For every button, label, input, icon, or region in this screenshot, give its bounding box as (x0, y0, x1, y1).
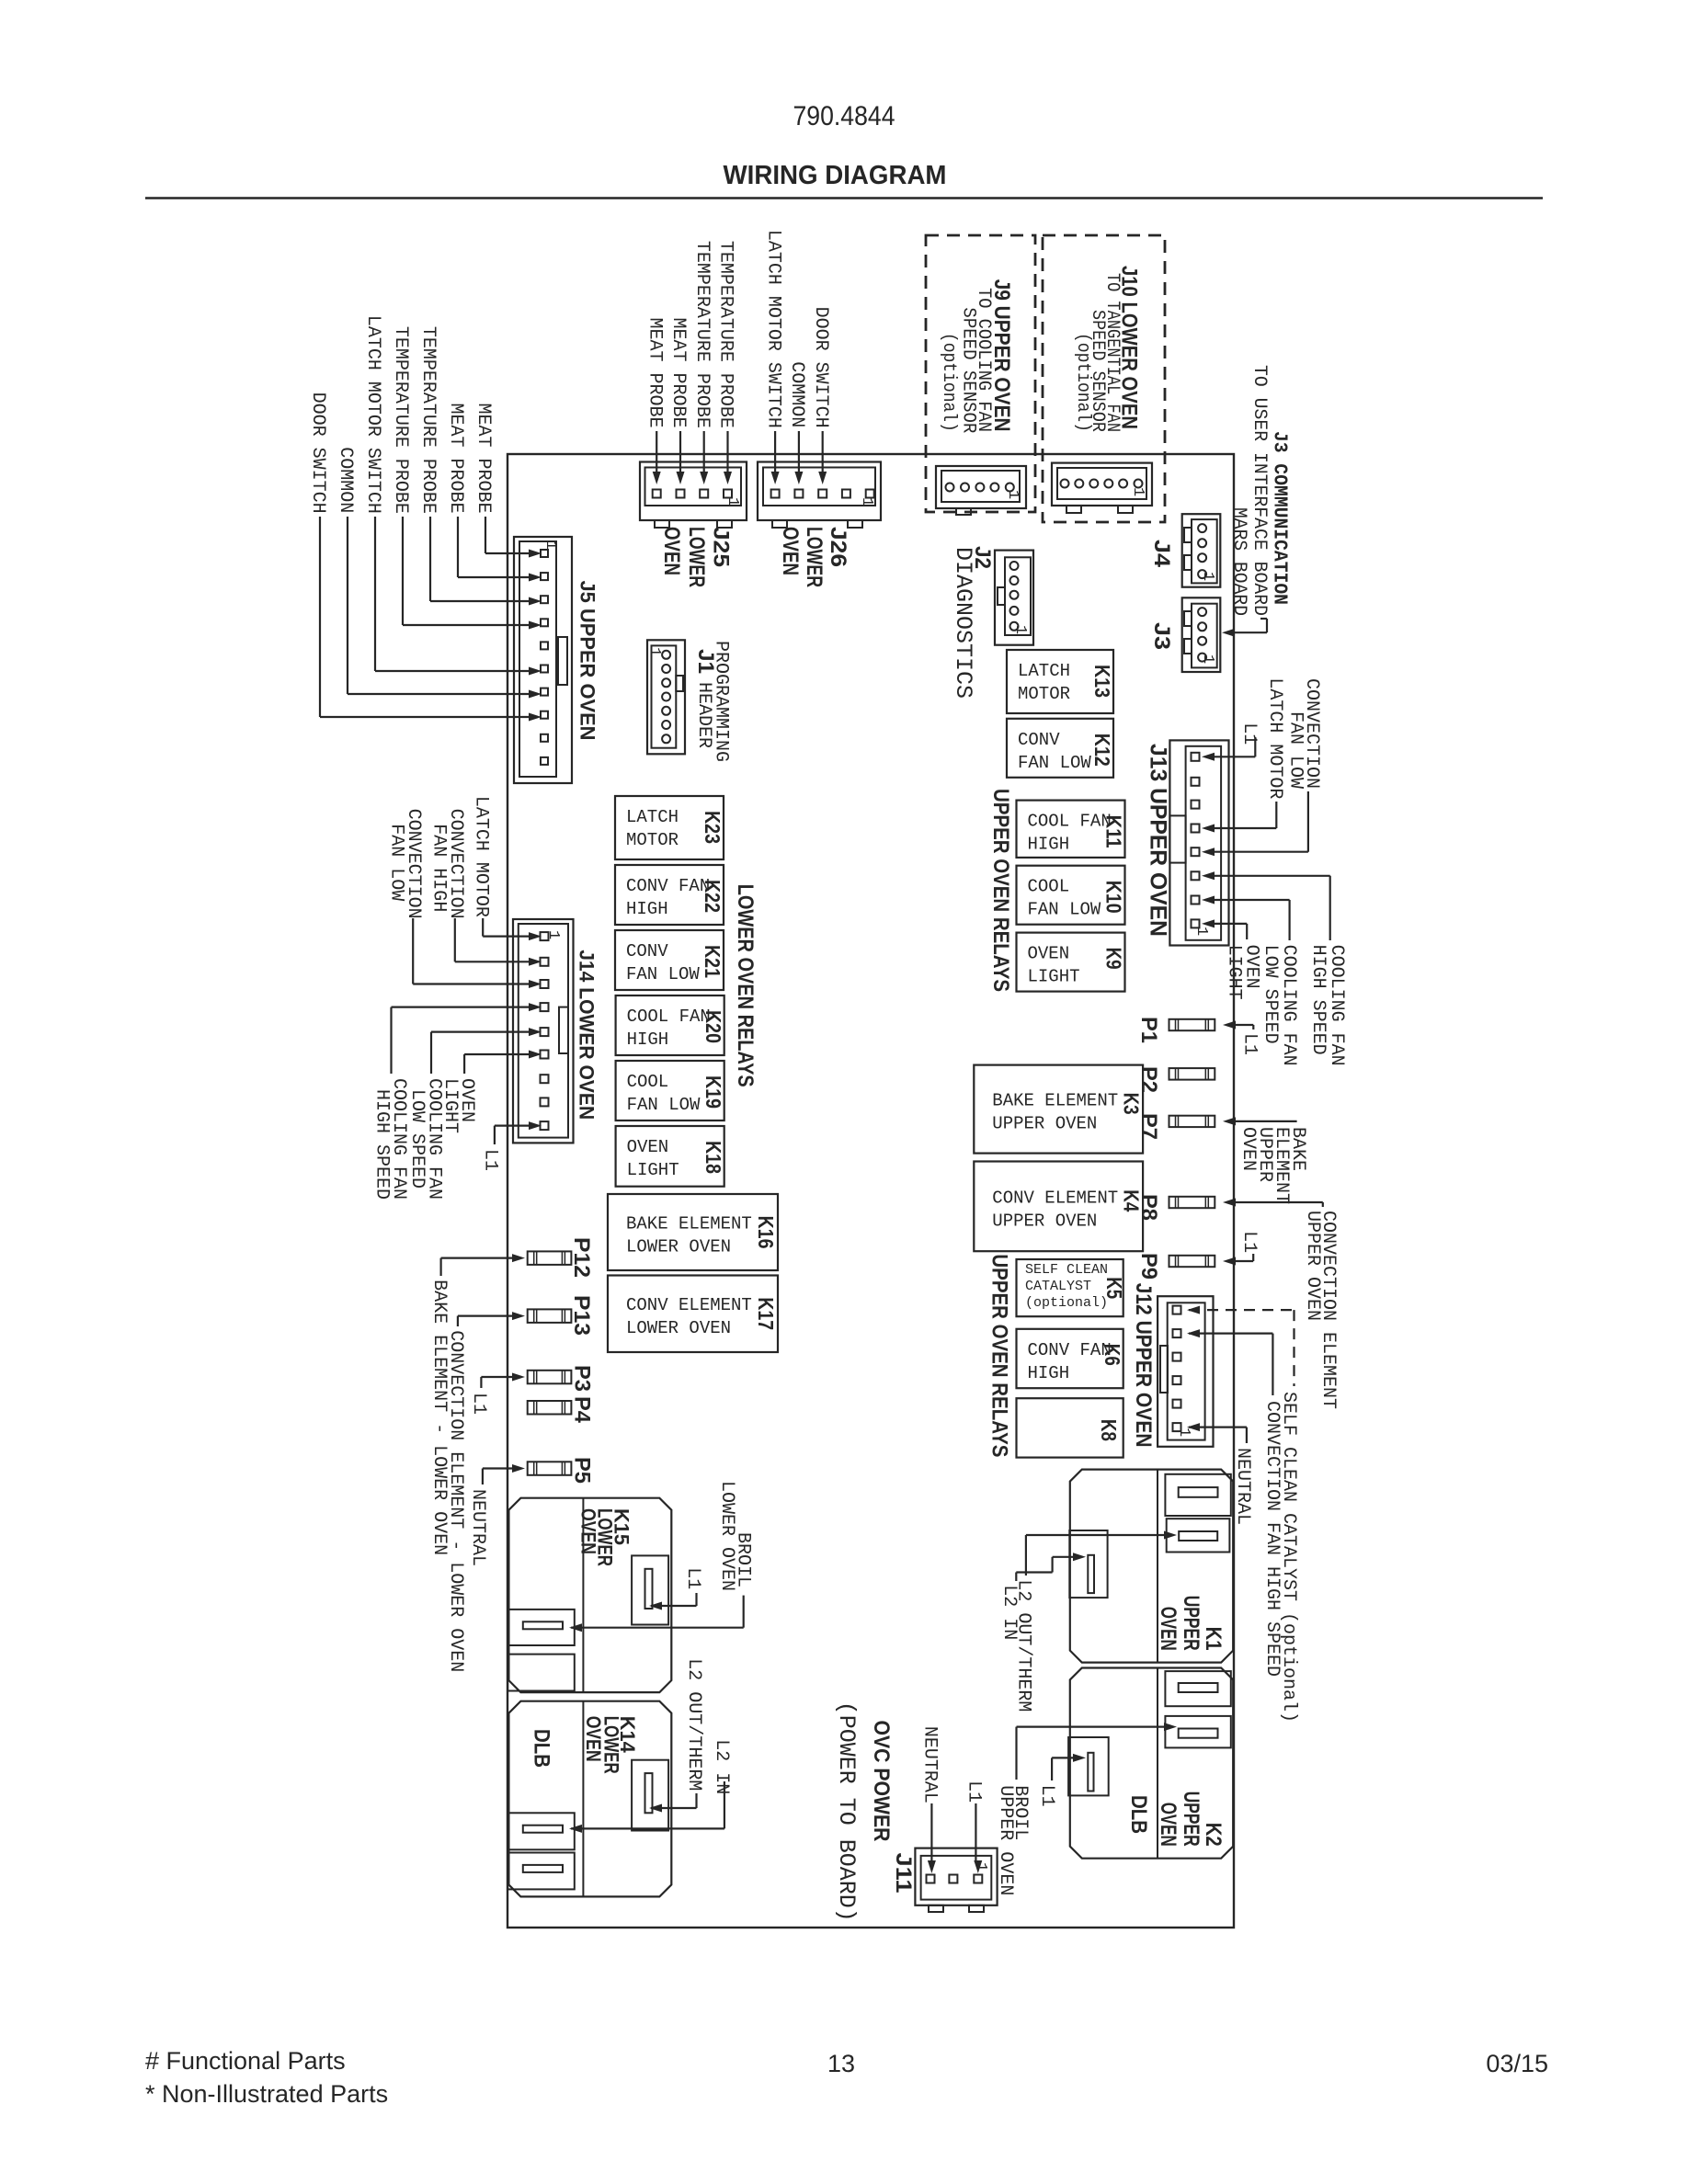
svg-text:OVEN: OVEN (577, 1508, 600, 1554)
svg-text:CONVECTION ELEMENT - LOWER OVE: CONVECTION ELEMENT - LOWER OVEN (445, 1330, 466, 1672)
svg-text:P4: P4 (570, 1396, 595, 1424)
svg-text:BAKE ELEMENT: BAKE ELEMENT (992, 1091, 1118, 1111)
svg-text:LOWER OVEN RELAYS: LOWER OVEN RELAYS (733, 884, 758, 1087)
svg-text:MEAT PROBE: MEAT PROBE (667, 318, 689, 428)
svg-text:SPEED SENSOR: SPEED SENSOR (958, 307, 979, 433)
svg-text:LIGHT: LIGHT (627, 1160, 679, 1180)
svg-text:L2 IN: L2 IN (711, 1739, 732, 1794)
svg-text:OVEN: OVEN (778, 527, 803, 575)
svg-text:FAN LOW: FAN LOW (626, 964, 700, 984)
svg-text:1: 1 (542, 540, 559, 550)
svg-text:TEMPERATURE PROBE: TEMPERATURE PROBE (691, 241, 713, 428)
svg-text:L1: L1 (964, 1780, 985, 1803)
svg-text:J5 UPPER OVEN: J5 UPPER OVEN (576, 581, 599, 741)
svg-text:J1: J1 (693, 649, 718, 674)
svg-text:K17: K17 (754, 1297, 778, 1330)
svg-text:LOWER: LOWER (802, 527, 827, 587)
svg-text:UPPER OVEN: UPPER OVEN (992, 1114, 1097, 1134)
svg-text:MEAT PROBE: MEAT PROBE (445, 404, 466, 514)
svg-text:LATCH: LATCH (626, 807, 679, 827)
svg-text:BAKE ELEMENT: BAKE ELEMENT (626, 1214, 752, 1234)
svg-text:J14 LOWER OVEN: J14 LOWER OVEN (576, 950, 599, 1120)
svg-text:CONV ELEMENT: CONV ELEMENT (992, 1188, 1118, 1208)
svg-text:OVEN: OVEN (1156, 1607, 1180, 1651)
svg-text:LIGHT: LIGHT (439, 1078, 461, 1133)
svg-text:(optional): (optional) (1072, 333, 1093, 432)
svg-text:J3: J3 (1149, 622, 1174, 650)
svg-text:P13: P13 (569, 1295, 594, 1336)
svg-text:LOWER OVEN: LOWER OVEN (626, 1237, 731, 1257)
svg-text:K8: K8 (1097, 1419, 1121, 1441)
svg-text:K5: K5 (1102, 1277, 1126, 1299)
svg-text:LIGHT: LIGHT (1028, 967, 1080, 987)
svg-text:L1: L1 (468, 1393, 489, 1415)
svg-text:03/15: 03/15 (1486, 2050, 1548, 2077)
svg-text:CONV: CONV (626, 941, 668, 961)
svg-text:1: 1 (1192, 927, 1210, 936)
svg-text:L1: L1 (1238, 722, 1260, 745)
svg-text:P1: P1 (1136, 1017, 1161, 1043)
svg-text:LOWER OVEN: LOWER OVEN (716, 1481, 737, 1591)
svg-text:MEAT PROBE: MEAT PROBE (473, 404, 494, 514)
svg-text:COOL FAN: COOL FAN (1028, 812, 1112, 832)
svg-text:TEMPERATURE PROBE: TEMPERATURE PROBE (417, 326, 439, 514)
svg-text:LATCH MOTOR: LATCH MOTOR (1264, 677, 1285, 799)
svg-text:UPPER OVEN: UPPER OVEN (1302, 1211, 1323, 1321)
svg-text:LOW SPEED: LOW SPEED (406, 1089, 428, 1189)
svg-text:CONV: CONV (1018, 730, 1060, 750)
svg-text:WIRING DIAGRAM: WIRING DIAGRAM (724, 161, 947, 190)
svg-text:K3: K3 (1119, 1093, 1143, 1115)
svg-text:L1: L1 (1238, 1231, 1260, 1253)
svg-text:DLB: DLB (1126, 1795, 1151, 1834)
svg-text:K22: K22 (701, 880, 724, 913)
svg-text:P12: P12 (569, 1237, 594, 1278)
svg-text:K11: K11 (1102, 815, 1126, 848)
svg-text:UPPER OVEN: UPPER OVEN (992, 1211, 1097, 1231)
svg-text:NEUTRAL: NEUTRAL (467, 1489, 488, 1566)
svg-text:1: 1 (1011, 625, 1029, 634)
svg-text:K6: K6 (1101, 1344, 1124, 1366)
svg-text:UPPER OVEN RELAYS: UPPER OVEN RELAYS (988, 789, 1013, 992)
svg-text:J26: J26 (826, 527, 850, 567)
svg-text:K12: K12 (1090, 734, 1114, 767)
svg-text:MOTOR: MOTOR (1018, 684, 1070, 704)
svg-text:P5: P5 (570, 1457, 595, 1484)
svg-text:UPPER OVEN RELAYS: UPPER OVEN RELAYS (987, 1254, 1011, 1457)
svg-text:1: 1 (1129, 487, 1146, 496)
svg-text:P3: P3 (570, 1365, 595, 1392)
svg-text:* Non-Illustrated Parts: * Non-Illustrated Parts (145, 2080, 388, 2108)
svg-text:CONV ELEMENT: CONV ELEMENT (626, 1295, 752, 1315)
svg-text:MARS BOARD: MARS BOARD (1228, 507, 1249, 616)
svg-text:NEUTRAL: NEUTRAL (1232, 1448, 1253, 1525)
svg-text:J12 UPPER OVEN: J12 UPPER OVEN (1131, 1283, 1156, 1448)
svg-text:13: 13 (827, 2050, 855, 2077)
svg-text:P8: P8 (1136, 1194, 1161, 1221)
svg-text:COOL FAN: COOL FAN (627, 1007, 711, 1027)
svg-text:(POWER TO BOARD): (POWER TO BOARD) (833, 1701, 860, 1922)
svg-text:FAN LOW: FAN LOW (1018, 753, 1091, 773)
svg-text:SELF CLEAN: SELF CLEAN (1025, 1262, 1108, 1278)
svg-text:K21: K21 (701, 945, 724, 978)
svg-text:LATCH MOTOR SWITCH: LATCH MOTOR SWITCH (762, 230, 783, 428)
svg-text:CONVECTION FAN HIGH SPEED: CONVECTION FAN HIGH SPEED (1261, 1401, 1283, 1677)
svg-text:L2 OUT/THERM: L2 OUT/THERM (683, 1658, 704, 1791)
svg-text:LATCH MOTOR SWITCH: LATCH MOTOR SWITCH (362, 315, 383, 514)
svg-text:K19: K19 (701, 1075, 725, 1109)
svg-text:J25: J25 (708, 527, 733, 567)
svg-text:1: 1 (544, 930, 562, 939)
svg-text:(optional): (optional) (938, 333, 959, 432)
svg-text:(optional): (optional) (1025, 1295, 1108, 1311)
svg-text:1: 1 (1199, 654, 1216, 664)
svg-text:K13: K13 (1090, 665, 1114, 698)
svg-text:FAN LOW: FAN LOW (1028, 900, 1101, 920)
svg-text:TEMPERATURE PROBE: TEMPERATURE PROBE (715, 241, 736, 428)
svg-text:OVEN: OVEN (582, 1716, 605, 1762)
svg-text:CONV FAN: CONV FAN (626, 876, 710, 896)
svg-text:# Functional Parts: # Functional Parts (145, 2047, 346, 2075)
svg-text:COMMON: COMMON (786, 361, 807, 427)
svg-text:LOWER: LOWER (684, 527, 709, 587)
svg-text:MEAT PROBE: MEAT PROBE (644, 318, 665, 428)
svg-text:LIGHT: LIGHT (1224, 945, 1245, 1000)
svg-text:OVEN: OVEN (627, 1137, 669, 1157)
svg-text:L2 IN: L2 IN (998, 1585, 1020, 1640)
svg-text:J11: J11 (891, 1853, 916, 1894)
svg-text:L1: L1 (1239, 1033, 1260, 1055)
svg-text:HIGH SPEED: HIGH SPEED (371, 1089, 393, 1200)
svg-text:MOTOR: MOTOR (626, 830, 679, 850)
svg-text:UPPER: UPPER (1179, 1596, 1203, 1651)
svg-text:FAN LOW: FAN LOW (1285, 711, 1306, 789)
svg-text:DLB: DLB (529, 1729, 553, 1768)
svg-text:OVEN: OVEN (659, 527, 684, 575)
svg-text:1: 1 (1004, 490, 1021, 499)
svg-text:J3 COMMUNICATION: J3 COMMUNICATION (1268, 431, 1289, 605)
svg-text:HIGH SPEED: HIGH SPEED (1307, 945, 1329, 1055)
svg-text:LATCH MOTOR: LATCH MOTOR (470, 796, 491, 917)
svg-text:L1: L1 (480, 1149, 501, 1171)
svg-text:790.4844: 790.4844 (793, 101, 895, 131)
svg-text:COMMON: COMMON (335, 447, 356, 513)
svg-text:1: 1 (1175, 1428, 1192, 1437)
svg-text:OVEN: OVEN (1156, 1803, 1180, 1847)
svg-text:K9: K9 (1102, 948, 1126, 970)
svg-text:FAN HIGH: FAN HIGH (428, 824, 450, 912)
svg-text:HIGH: HIGH (1028, 1363, 1070, 1383)
svg-text:OVEN: OVEN (1028, 944, 1070, 964)
svg-text:COOL: COOL (627, 1072, 669, 1092)
svg-text:UPPER: UPPER (1179, 1792, 1203, 1847)
svg-text:HEADER: HEADER (693, 682, 714, 748)
svg-text:P9: P9 (1136, 1253, 1161, 1280)
svg-text:P2: P2 (1136, 1066, 1161, 1093)
svg-text:1: 1 (858, 497, 875, 506)
svg-text:L1: L1 (1036, 1785, 1057, 1807)
svg-text:LOWER OVEN: LOWER OVEN (626, 1318, 731, 1338)
svg-text:K10: K10 (1102, 881, 1126, 914)
svg-text:HIGH: HIGH (1028, 835, 1070, 855)
svg-text:CONV FAN: CONV FAN (1028, 1340, 1112, 1360)
svg-text:COOL: COOL (1028, 877, 1070, 897)
svg-text:K1: K1 (1201, 1627, 1226, 1651)
svg-text:K18: K18 (701, 1141, 725, 1174)
svg-text:CATALYST: CATALYST (1025, 1279, 1091, 1294)
svg-text:P7: P7 (1136, 1113, 1161, 1140)
svg-text:OVEN: OVEN (1237, 1127, 1259, 1171)
svg-text:K20: K20 (701, 1010, 725, 1043)
svg-text:HIGH: HIGH (627, 1029, 669, 1050)
svg-text:OVC POWER: OVC POWER (869, 1721, 894, 1842)
svg-text:NEUTRAL: NEUTRAL (919, 1726, 941, 1803)
svg-text:HIGH: HIGH (626, 899, 668, 919)
svg-text:FAN LOW: FAN LOW (627, 1095, 701, 1115)
svg-text:TEMPERATURE PROBE: TEMPERATURE PROBE (390, 326, 411, 514)
svg-text:1: 1 (724, 497, 741, 506)
svg-text:K23: K23 (701, 811, 724, 844)
svg-text:J13 UPPER OVEN: J13 UPPER OVEN (1146, 744, 1171, 937)
svg-text:K16: K16 (754, 1216, 778, 1249)
svg-text:FAN LOW: FAN LOW (386, 824, 407, 901)
svg-text:1: 1 (645, 647, 663, 656)
svg-text:TO USER INTERFACE BOARD: TO USER INTERFACE BOARD (1249, 365, 1270, 616)
svg-text:DOOR SWITCH: DOOR SWITCH (810, 307, 831, 428)
svg-text:K2: K2 (1201, 1823, 1226, 1847)
svg-text:DIAGNOSTICS: DIAGNOSTICS (950, 547, 976, 699)
svg-text:1: 1 (1199, 572, 1216, 581)
svg-text:J4: J4 (1149, 540, 1174, 568)
svg-text:DOOR SWITCH: DOOR SWITCH (307, 392, 328, 514)
svg-text:L1: L1 (682, 1567, 703, 1589)
svg-text:LATCH: LATCH (1018, 661, 1070, 681)
